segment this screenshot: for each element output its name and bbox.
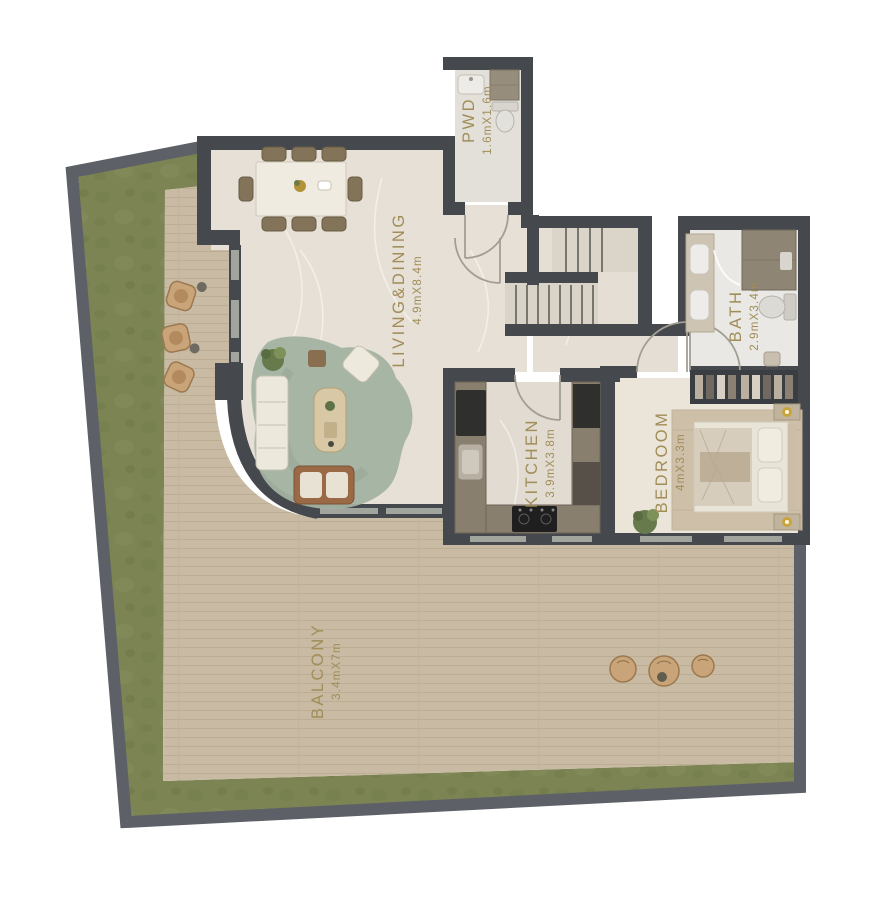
deck-pouf <box>692 655 714 677</box>
table-dish <box>318 181 331 190</box>
room-dimensions: 1.6mX1.6m <box>482 85 494 155</box>
room-label-pwd: PWD 1.6mX1.6m <box>460 85 494 155</box>
dining-chair <box>292 147 316 161</box>
room-label-balcony: BALCONY 3.4mX7m <box>309 623 343 719</box>
room-dimensions: 2.9mX3.4m <box>749 281 761 351</box>
deck-pouf <box>610 656 636 682</box>
room-name: BEDROOM <box>653 411 672 514</box>
side-table <box>308 350 326 367</box>
room-dimensions: 3.9mX3.8m <box>545 428 557 498</box>
headboard <box>788 424 796 510</box>
room-label-kitchen: KITCHEN 3.9mX3.8m <box>523 418 557 508</box>
pillow <box>758 468 782 502</box>
bath-sink <box>690 244 709 274</box>
room-label-bath: BATH 2.9mX3.4m <box>727 281 761 351</box>
bed-throw <box>700 452 750 482</box>
room-name: KITCHEN <box>523 418 542 508</box>
room-name: LIVING&DINING <box>390 212 409 367</box>
dining-chair <box>322 217 346 231</box>
oven <box>573 384 600 428</box>
bath-toilet <box>759 294 796 320</box>
room-dimensions: 4mX3.3m <box>675 433 687 491</box>
dining-chair <box>292 217 316 231</box>
bath-sink <box>690 290 709 320</box>
room-label-bedroom: BEDROOM 4mX3.3m <box>653 411 687 514</box>
nightstand <box>774 514 800 530</box>
dining-chair <box>322 147 346 161</box>
coffee-table <box>314 388 346 452</box>
sofa-brown <box>294 466 354 504</box>
floor-plan-drawing <box>0 0 882 902</box>
fridge <box>456 390 486 436</box>
room-label-living-dining: LIVING&DINING 4.9mX8.4m <box>390 212 424 367</box>
dining-chair <box>262 147 286 161</box>
dining-chair <box>262 217 286 231</box>
bath-stool <box>764 352 780 366</box>
room-dimensions: 3.4mX7m <box>331 642 343 700</box>
sofa-white <box>256 376 288 470</box>
stove <box>512 506 557 532</box>
dining-chair <box>348 177 362 201</box>
room-dimensions: 4.9mX8.4m <box>412 255 424 325</box>
wardrobe <box>690 370 798 404</box>
kitchen-sink <box>458 444 483 480</box>
bed <box>694 422 796 512</box>
kitchen-appliance <box>573 462 600 505</box>
deck-pouf <box>649 656 679 686</box>
dining-chair <box>239 177 253 201</box>
floor-plan-page: PWD 1.6mX1.6m LIVING&DINING 4.9mX8.4m BA… <box>0 0 882 902</box>
room-name: BATH <box>727 290 746 343</box>
pillow <box>758 428 782 462</box>
room-name: PWD <box>460 97 479 143</box>
room-name: BALCONY <box>309 623 328 719</box>
nightstand <box>774 404 800 420</box>
